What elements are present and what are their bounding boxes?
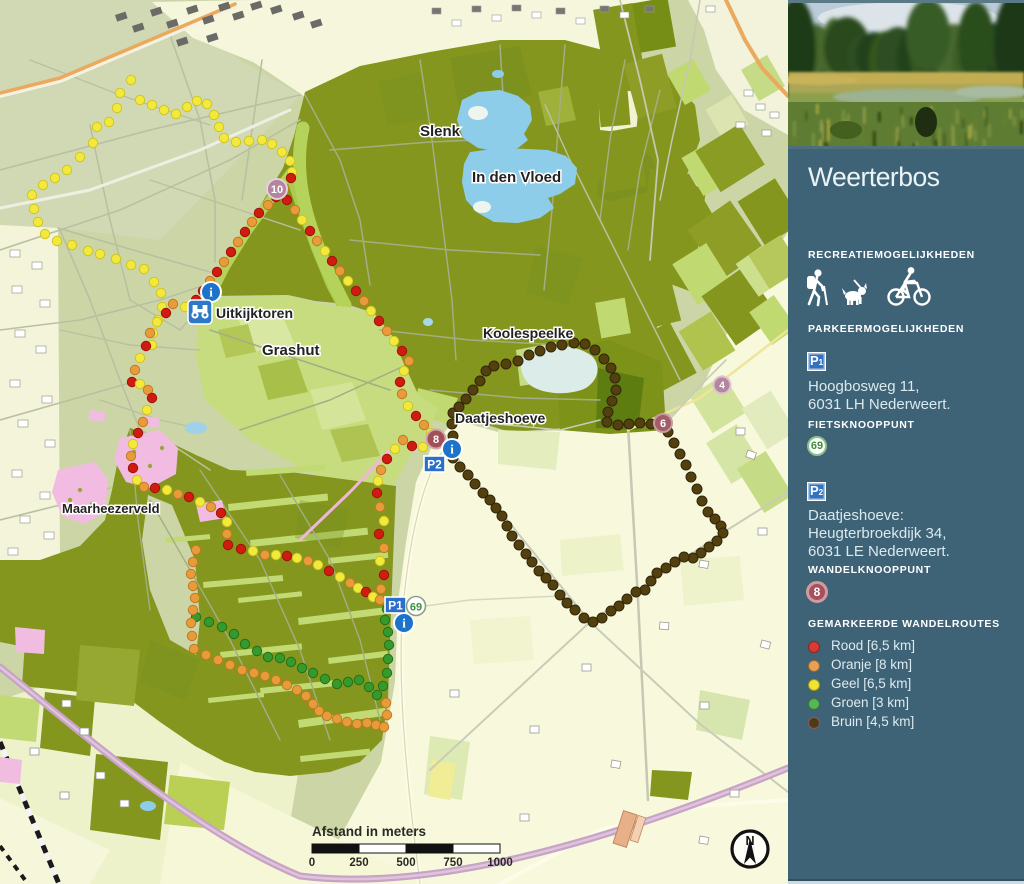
svg-text:10: 10	[271, 184, 283, 196]
svg-text:4: 4	[719, 381, 725, 392]
svg-text:i: i	[209, 285, 213, 300]
svg-text:6: 6	[660, 418, 666, 430]
svg-text:750: 750	[443, 857, 462, 869]
svg-text:Uitkijktoren: Uitkijktoren	[216, 305, 293, 321]
svg-text:500: 500	[396, 857, 415, 869]
svg-text:Grashut: Grashut	[262, 342, 320, 359]
svg-text:8: 8	[433, 434, 439, 446]
svg-text:0: 0	[309, 857, 315, 869]
svg-text:Koolespeelke: Koolespeelke	[483, 325, 573, 341]
svg-text:Slenk: Slenk	[420, 123, 461, 140]
svg-text:i: i	[402, 616, 406, 631]
svg-text:250: 250	[349, 857, 368, 869]
svg-text:Afstand in meters: Afstand in meters	[312, 824, 426, 839]
svg-text:1000: 1000	[487, 857, 513, 869]
svg-text:i: i	[450, 442, 454, 457]
svg-text:69: 69	[410, 602, 422, 614]
svg-text:In den Vloed: In den Vloed	[472, 169, 561, 186]
svg-text:Maarheezerveld: Maarheezerveld	[62, 501, 160, 516]
svg-text:Daatjeshoeve: Daatjeshoeve	[455, 410, 545, 426]
svg-text:P2: P2	[427, 458, 442, 472]
svg-text:P1: P1	[388, 599, 403, 613]
